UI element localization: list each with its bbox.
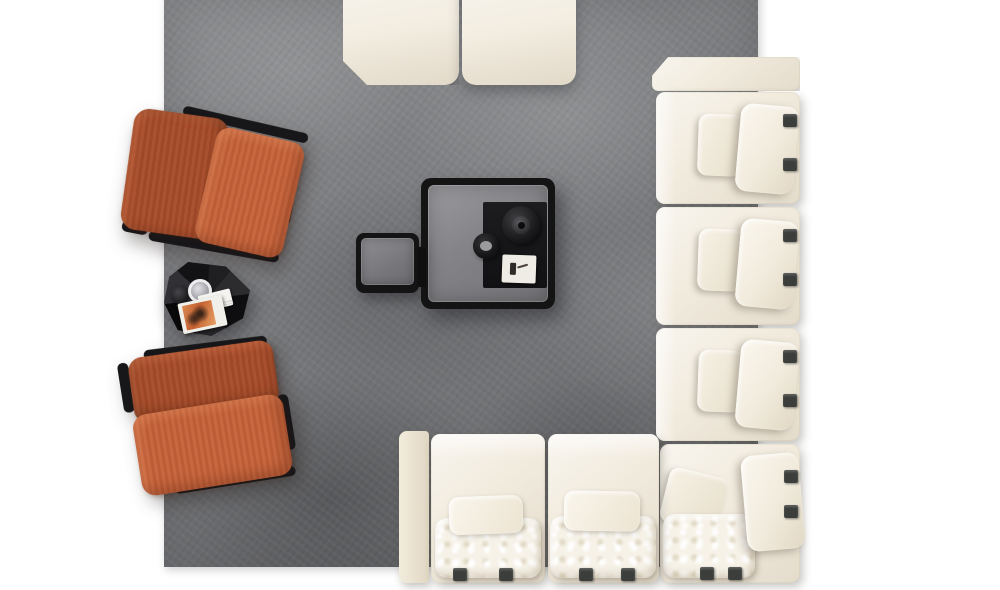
- strap-detail: [728, 567, 742, 580]
- lumbar-pillow: [448, 495, 523, 536]
- armchair-bottom: [116, 332, 304, 501]
- strap-detail: [784, 470, 798, 483]
- card-motif: [510, 263, 516, 275]
- coffee-table: [421, 178, 555, 309]
- strap-detail: [783, 229, 797, 242]
- side-table-top: [361, 238, 414, 285]
- strap-detail: [579, 568, 593, 581]
- ashtray-center: [480, 241, 492, 251]
- strap-detail: [783, 114, 797, 127]
- strap-detail: [783, 273, 797, 286]
- strap-detail: [621, 568, 635, 581]
- accent-table-group: [164, 262, 250, 336]
- sofa-right-module-1: [656, 92, 800, 204]
- bowl-center: [518, 222, 525, 229]
- lumbar-pillow: [564, 490, 641, 531]
- strap-detail: [453, 568, 467, 581]
- strap-detail: [783, 158, 797, 171]
- strap-detail: [783, 394, 797, 407]
- card-motif: [517, 264, 528, 269]
- ottoman-module-right: [462, 0, 576, 85]
- art-card: [502, 254, 537, 283]
- ashtray-bowl: [473, 233, 499, 259]
- sofa-corner-module: [660, 444, 800, 583]
- sofa-right-module-3: [656, 328, 800, 441]
- strap-detail: [784, 505, 798, 518]
- magazine-cover-art: [182, 300, 217, 331]
- sofa-bottom-module-2: [548, 434, 659, 583]
- back-pillow: [740, 452, 806, 553]
- living-room-top-view-photo: [0, 0, 1000, 590]
- strap-detail: [783, 350, 797, 363]
- sofa-right-module-2: [656, 207, 800, 325]
- sofa-top-armrest: [652, 57, 800, 91]
- strap-detail: [499, 568, 513, 581]
- sofa-left-armrest: [399, 431, 429, 583]
- strap-detail: [700, 567, 714, 580]
- sofa-bottom-module-1: [431, 434, 545, 583]
- side-table-bracket: [417, 247, 426, 287]
- side-table: [356, 233, 419, 293]
- ottoman-module-left: [343, 0, 459, 85]
- pedestal-bowl: [502, 206, 540, 244]
